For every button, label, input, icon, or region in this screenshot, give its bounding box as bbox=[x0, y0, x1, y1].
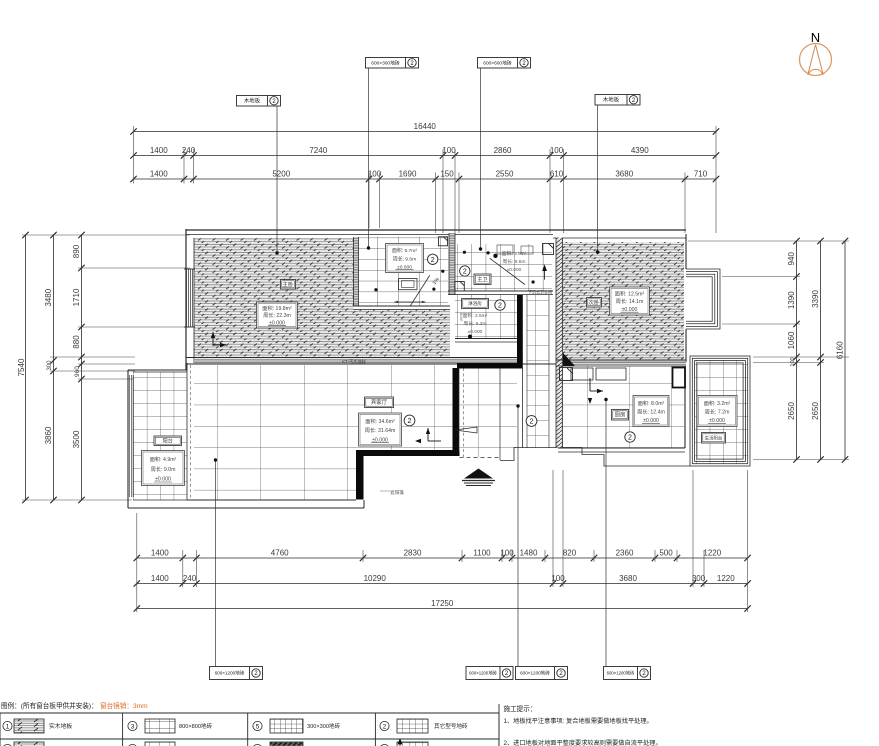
svg-text:940: 940 bbox=[787, 252, 796, 266]
svg-text:7240: 7240 bbox=[309, 146, 327, 155]
svg-text:2650: 2650 bbox=[787, 402, 796, 420]
svg-text:1220: 1220 bbox=[717, 574, 735, 583]
svg-text:880: 880 bbox=[72, 335, 81, 349]
svg-text:主卫: 主卫 bbox=[477, 275, 487, 283]
svg-text:面积: 3.9m²: 面积: 3.9m² bbox=[502, 250, 527, 257]
svg-text:面积: 2.5m²: 面积: 2.5m² bbox=[463, 312, 488, 319]
svg-text:4760: 4760 bbox=[271, 549, 289, 558]
svg-text:周长: 6.3m: 周长: 6.3m bbox=[464, 320, 487, 327]
svg-text:610: 610 bbox=[550, 170, 564, 179]
svg-text:4390: 4390 bbox=[631, 146, 649, 155]
svg-text:1390: 1390 bbox=[787, 291, 796, 309]
svg-text:遮阳篷: 遮阳篷 bbox=[390, 489, 404, 496]
svg-text:600×1200地砖: 600×1200地砖 bbox=[469, 670, 498, 677]
svg-text:1480: 1480 bbox=[520, 549, 538, 558]
svg-text:图例：(所有窗台板甲供并安装)：: 图例：(所有窗台板甲供并安装)： bbox=[1, 701, 98, 710]
svg-text:2550: 2550 bbox=[496, 170, 514, 179]
svg-text:周长: 9.0m: 周长: 9.0m bbox=[151, 465, 176, 473]
svg-text:3680: 3680 bbox=[619, 574, 637, 583]
svg-text:周长: 7.2m: 周长: 7.2m bbox=[705, 407, 730, 415]
svg-text:2360: 2360 bbox=[616, 549, 634, 558]
svg-text:面积: 3.2m²: 面积: 3.2m² bbox=[704, 400, 731, 407]
svg-text:960: 960 bbox=[74, 366, 81, 377]
svg-text:木地板: 木地板 bbox=[244, 97, 261, 105]
svg-text:240: 240 bbox=[183, 574, 197, 583]
svg-text:16440: 16440 bbox=[414, 122, 437, 131]
svg-text:2: 2 bbox=[628, 435, 632, 442]
svg-text:施工提示：: 施工提示： bbox=[504, 704, 537, 713]
svg-text:淋浴房: 淋浴房 bbox=[468, 300, 482, 307]
svg-text:±0.000: ±0.000 bbox=[468, 329, 483, 335]
svg-text:1400: 1400 bbox=[151, 549, 169, 558]
svg-text:7540: 7540 bbox=[17, 358, 26, 376]
svg-text:厨房: 厨房 bbox=[615, 411, 626, 419]
svg-text:890: 890 bbox=[72, 244, 81, 258]
svg-text:周长: 9.6m: 周长: 9.6m bbox=[393, 255, 416, 262]
svg-text:宾家厅: 宾家厅 bbox=[371, 398, 388, 406]
svg-text:5: 5 bbox=[256, 723, 260, 730]
svg-text:2: 2 bbox=[498, 303, 502, 310]
svg-text:3480: 3480 bbox=[44, 288, 53, 306]
svg-text:100: 100 bbox=[550, 146, 564, 155]
svg-text:2: 2 bbox=[408, 418, 412, 425]
svg-text:2、进口地板对地面平整度要求较高则需要做自流平处理。: 2、进口地板对地面平整度要求较高则需要做自流平处理。 bbox=[504, 739, 662, 746]
svg-text:800×800地砖: 800×800地砖 bbox=[179, 722, 213, 730]
svg-text:1690: 1690 bbox=[399, 170, 417, 179]
svg-text:600×1200地砖: 600×1200地砖 bbox=[607, 670, 636, 677]
svg-text:面积: 4.9m²: 面积: 4.9m² bbox=[150, 456, 177, 463]
svg-text:±0.000: ±0.000 bbox=[507, 267, 522, 273]
svg-text:生活阳台: 生活阳台 bbox=[705, 434, 723, 441]
svg-text:150: 150 bbox=[440, 170, 454, 179]
svg-text:3680: 3680 bbox=[615, 170, 633, 179]
svg-text:1710: 1710 bbox=[72, 288, 81, 306]
svg-text:1100: 1100 bbox=[473, 549, 491, 558]
svg-text:2: 2 bbox=[463, 269, 467, 276]
svg-text:1400: 1400 bbox=[151, 574, 169, 583]
svg-text:600×600地砖: 600×600地砖 bbox=[483, 59, 512, 66]
svg-text:2830: 2830 bbox=[404, 549, 422, 558]
svg-text:1: 1 bbox=[6, 723, 10, 730]
svg-text:2: 2 bbox=[530, 419, 534, 426]
svg-text:710: 710 bbox=[694, 170, 708, 179]
svg-text:820: 820 bbox=[563, 549, 577, 558]
svg-text:3500: 3500 bbox=[72, 430, 81, 448]
svg-text:1060: 1060 bbox=[787, 331, 796, 349]
svg-text:周长: 14.1m: 周长: 14.1m bbox=[616, 297, 644, 305]
svg-text:100: 100 bbox=[442, 146, 456, 155]
svg-text:17250: 17250 bbox=[431, 599, 454, 608]
svg-text:阳台: 阳台 bbox=[163, 437, 173, 445]
svg-text:100: 100 bbox=[790, 357, 796, 366]
svg-text:窗台镜销：3mm: 窗台镜销：3mm bbox=[100, 701, 148, 710]
svg-text:周长: 22.3m: 周长: 22.3m bbox=[263, 311, 291, 319]
svg-text:周长: 31.64m: 周长: 31.64m bbox=[365, 426, 396, 434]
svg-text:周长: 8.6m: 周长: 8.6m bbox=[503, 258, 526, 265]
svg-text:600×1200地砖: 600×1200地砖 bbox=[520, 670, 550, 677]
svg-text:600×300地砖: 600×300地砖 bbox=[371, 59, 400, 66]
svg-text:2: 2 bbox=[383, 723, 387, 730]
svg-text:其它型号地砖: 其它型号地砖 bbox=[434, 722, 468, 730]
svg-text:3: 3 bbox=[131, 723, 135, 730]
svg-text:300: 300 bbox=[47, 360, 53, 371]
svg-text:500: 500 bbox=[659, 549, 673, 558]
svg-text:N: N bbox=[811, 30, 820, 45]
svg-text:实木地板: 实木地板 bbox=[49, 722, 72, 730]
svg-text:2650: 2650 bbox=[811, 402, 820, 420]
svg-text:3390: 3390 bbox=[811, 290, 820, 308]
svg-text:面积: 5.7m²: 面积: 5.7m² bbox=[392, 247, 417, 254]
svg-text:KT·丐式地材: KT·丐式地材 bbox=[342, 358, 366, 365]
svg-text:周长: 12.4m: 周长: 12.4m bbox=[637, 407, 665, 415]
svg-text:1400: 1400 bbox=[150, 146, 168, 155]
svg-text:5200: 5200 bbox=[272, 170, 290, 179]
svg-text:下沉式卫生间: 下沉式卫生间 bbox=[528, 289, 552, 295]
svg-text:300×300地砖: 300×300地砖 bbox=[307, 722, 341, 730]
svg-text:3860: 3860 bbox=[44, 426, 53, 444]
svg-text:木地板: 木地板 bbox=[603, 96, 620, 104]
svg-text:面积: 34.6m²: 面积: 34.6m² bbox=[365, 418, 395, 425]
svg-text:次卧: 次卧 bbox=[588, 298, 600, 306]
svg-text:面积: 8.0m²: 面积: 8.0m² bbox=[638, 400, 665, 407]
svg-text:1400: 1400 bbox=[150, 170, 168, 179]
svg-text:1220: 1220 bbox=[703, 549, 721, 558]
svg-text:300: 300 bbox=[692, 574, 706, 583]
svg-text:面积: 19.8m²: 面积: 19.8m² bbox=[262, 305, 292, 312]
svg-text:2860: 2860 bbox=[494, 146, 512, 155]
svg-text:2: 2 bbox=[431, 257, 435, 264]
svg-text:600×1200地砖: 600×1200地砖 bbox=[215, 670, 245, 677]
svg-text:面积: 12.5m²: 面积: 12.5m² bbox=[615, 290, 645, 297]
svg-text:10290: 10290 bbox=[364, 574, 387, 583]
svg-text:1、地板找平注意事项: 复合地板需要做地板找平处理。: 1、地板找平注意事项: 复合地板需要做地板找平处理。 bbox=[504, 717, 653, 725]
svg-text:主卧: 主卧 bbox=[282, 280, 294, 288]
svg-text:6160: 6160 bbox=[836, 341, 845, 359]
